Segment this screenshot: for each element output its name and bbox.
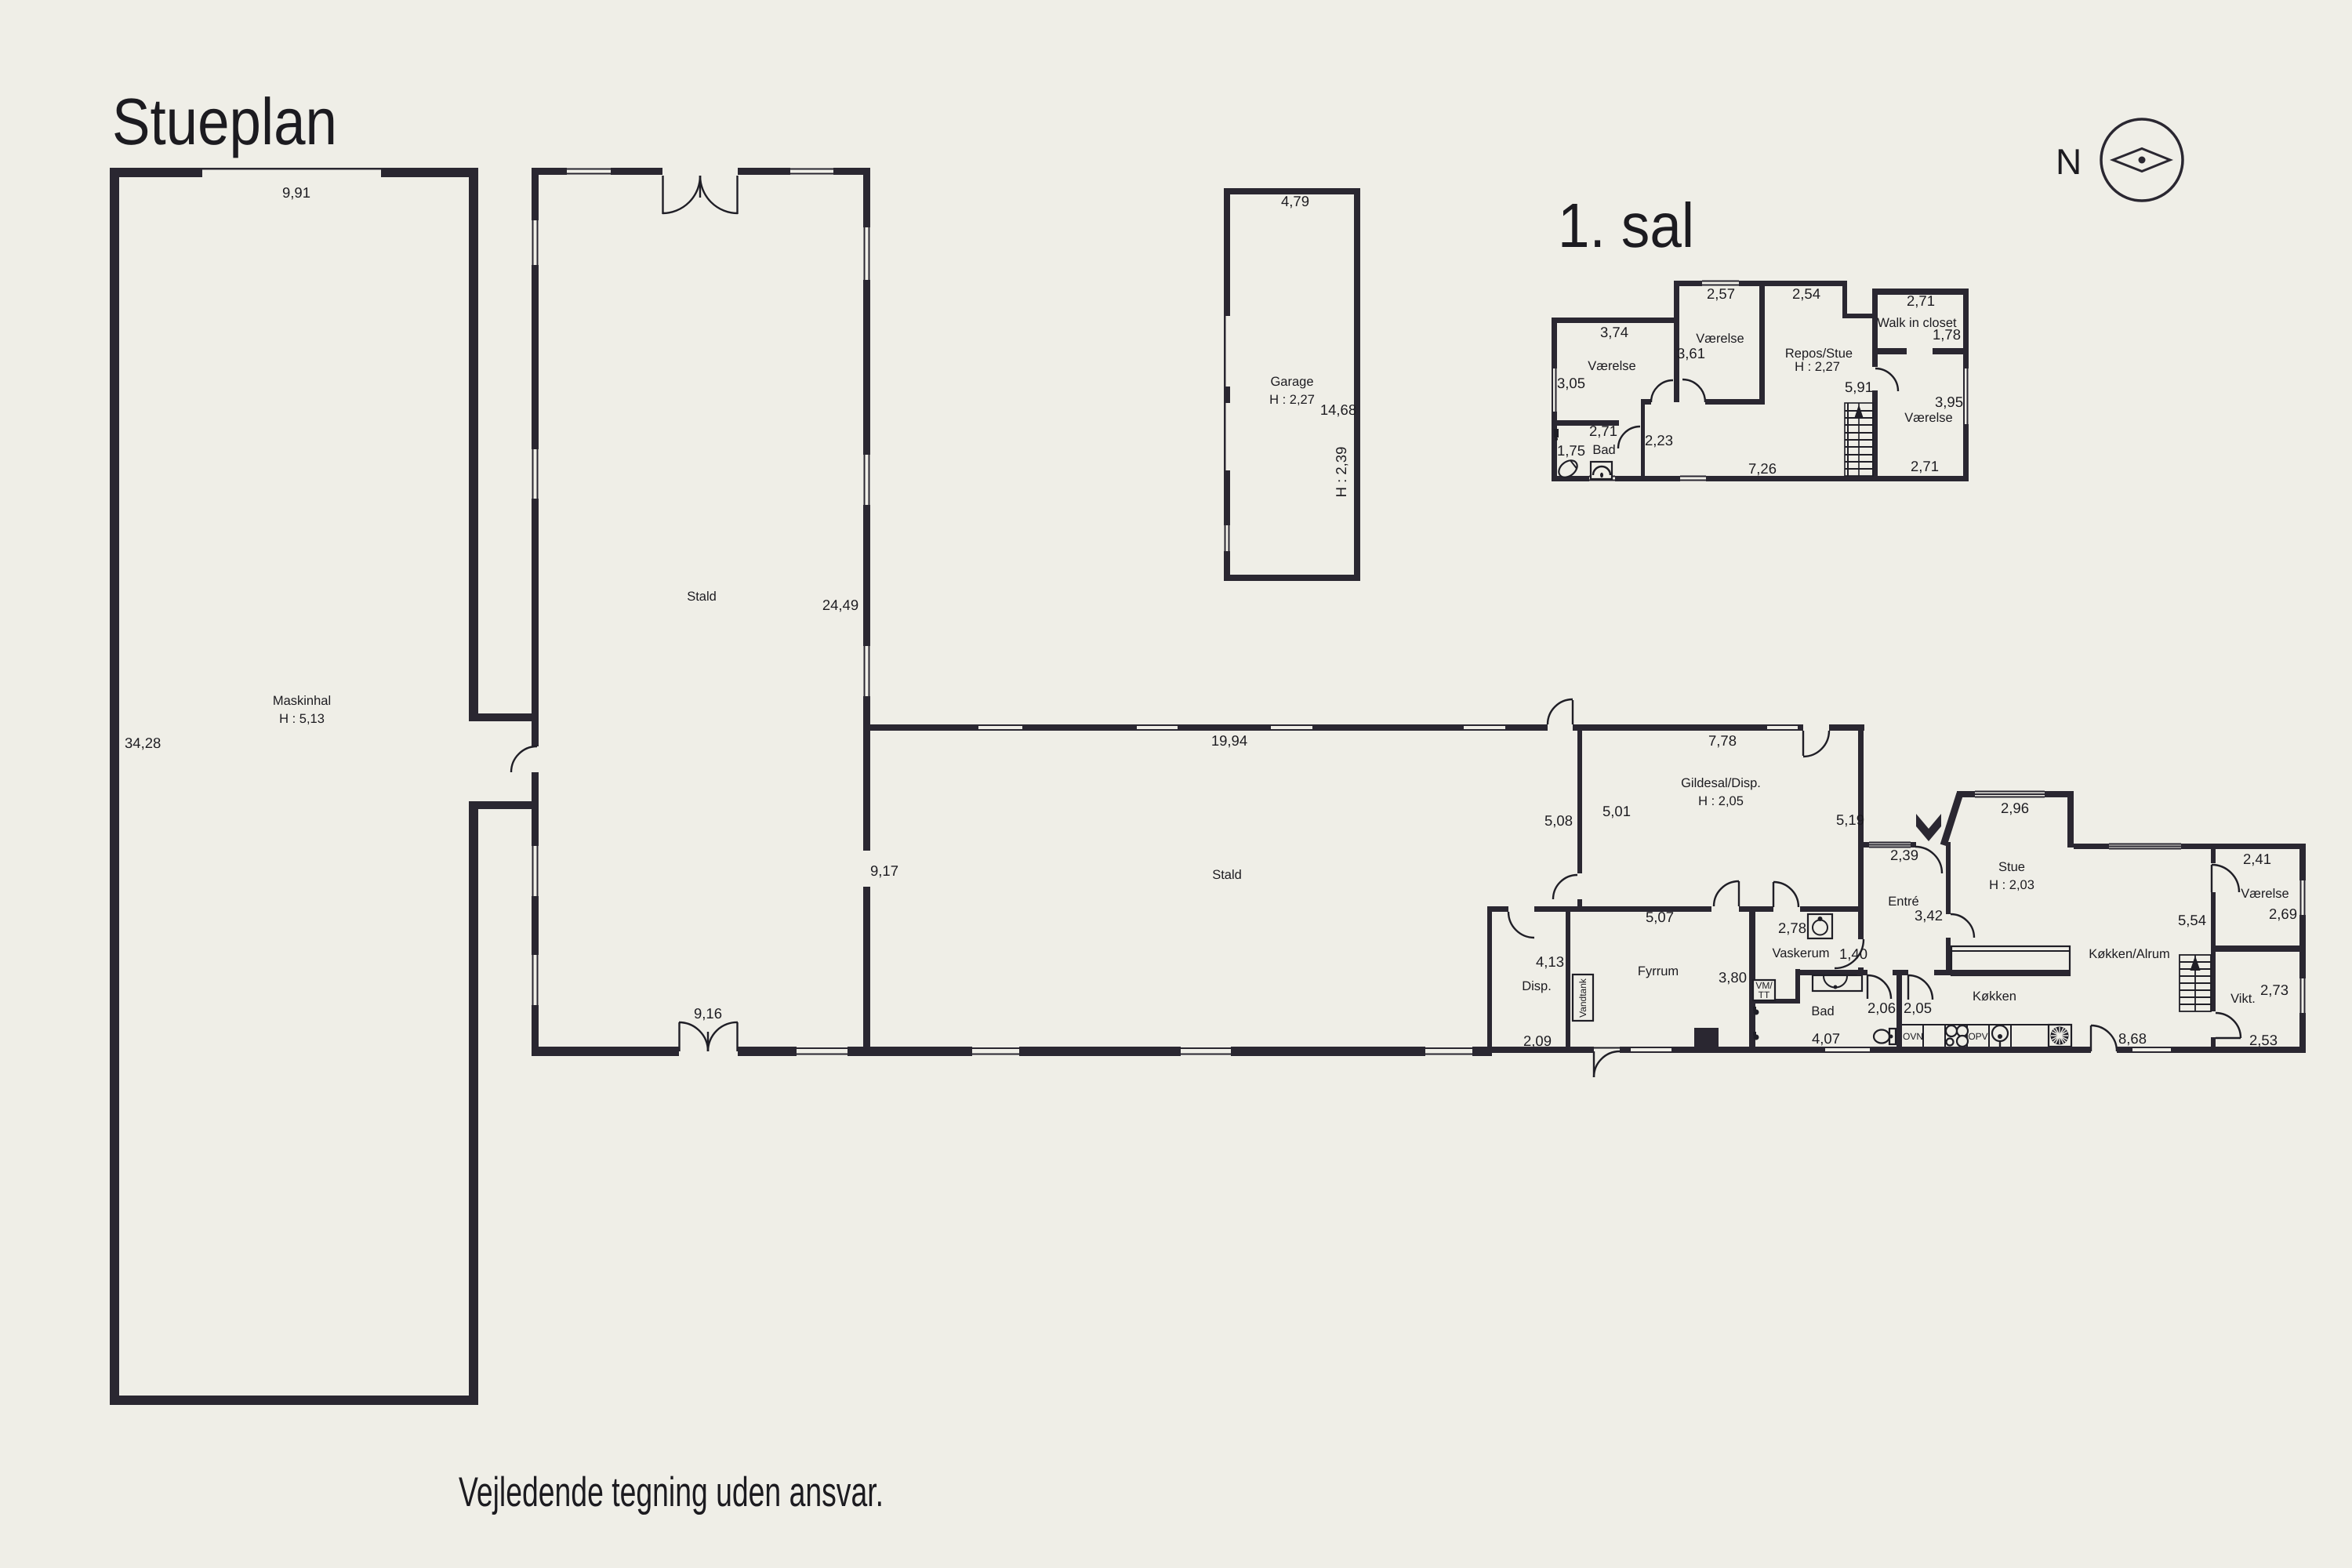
svg-text:2,78: 2,78: [1778, 920, 1806, 936]
svg-text:24,49: 24,49: [822, 597, 858, 613]
svg-text:Gildesal/Disp.: Gildesal/Disp.: [1681, 776, 1761, 790]
svg-text:4,79: 4,79: [1281, 193, 1309, 209]
svg-text:Vaskerum: Vaskerum: [1772, 946, 1829, 960]
svg-text:Garage: Garage: [1270, 375, 1313, 389]
svg-text:34,28: 34,28: [125, 735, 161, 751]
svg-text:1. sal: 1. sal: [1558, 191, 1694, 260]
svg-text:H : 2,39: H : 2,39: [1333, 447, 1349, 498]
svg-text:2,39: 2,39: [1890, 847, 1918, 863]
svg-text:2,69: 2,69: [2269, 906, 2297, 922]
svg-text:2,54: 2,54: [1792, 285, 1820, 302]
svg-text:5,07: 5,07: [1646, 909, 1674, 925]
svg-text:2,09: 2,09: [1523, 1033, 1552, 1049]
svg-text:7,26: 7,26: [1748, 460, 1777, 477]
svg-text:Repos/Stue: Repos/Stue: [1785, 347, 1853, 361]
svg-text:H : 2,27: H : 2,27: [1795, 360, 1840, 374]
svg-text:2,06: 2,06: [1867, 1000, 1896, 1016]
svg-text:Vandtank: Vandtank: [1577, 978, 1588, 1018]
svg-text:Stue: Stue: [1998, 860, 2025, 874]
svg-text:9,17: 9,17: [870, 862, 898, 879]
svg-text:Stald: Stald: [1212, 868, 1242, 882]
svg-text:2,71: 2,71: [1589, 423, 1617, 439]
svg-text:Værelse: Værelse: [1588, 359, 1635, 373]
svg-text:2,41: 2,41: [2243, 851, 2271, 867]
svg-text:Disp.: Disp.: [1522, 979, 1552, 993]
svg-text:Køkken: Køkken: [1973, 989, 2016, 1004]
svg-text:2,53: 2,53: [2249, 1032, 2278, 1048]
svg-text:Bad: Bad: [1592, 443, 1615, 457]
svg-text:OPV: OPV: [1968, 1031, 1987, 1042]
svg-text:3,95: 3,95: [1935, 394, 1963, 410]
svg-text:19,94: 19,94: [1211, 732, 1247, 749]
svg-text:Vejledende tegning uden ansvar: Vejledende tegning uden ansvar.: [459, 1469, 884, 1515]
svg-text:5,19: 5,19: [1836, 811, 1864, 828]
svg-text:9,16: 9,16: [694, 1005, 722, 1022]
svg-text:5,01: 5,01: [1602, 803, 1631, 819]
svg-text:3,05: 3,05: [1557, 375, 1585, 391]
svg-text:H : 5,13: H : 5,13: [279, 712, 325, 726]
svg-text:7,78: 7,78: [1708, 732, 1737, 749]
svg-text:14,68: 14,68: [1320, 401, 1356, 418]
svg-text:2,73: 2,73: [2260, 982, 2288, 998]
svg-text:TT: TT: [1759, 989, 1770, 1000]
svg-text:Stald: Stald: [687, 590, 717, 604]
svg-text:H : 2,27: H : 2,27: [1269, 393, 1315, 407]
svg-text:4,07: 4,07: [1812, 1030, 1840, 1047]
svg-text:H : 2,03: H : 2,03: [1989, 878, 2034, 892]
svg-text:1,78: 1,78: [1933, 326, 1961, 343]
svg-text:H : 2,05: H : 2,05: [1698, 794, 1744, 808]
svg-text:OVN: OVN: [1903, 1031, 1923, 1042]
svg-text:4,13: 4,13: [1536, 953, 1564, 970]
svg-text:Maskinhal: Maskinhal: [273, 694, 331, 708]
svg-text:Køkken/Alrum: Køkken/Alrum: [2089, 947, 2170, 961]
svg-text:2,71: 2,71: [1911, 458, 1939, 474]
svg-text:3,61: 3,61: [1677, 345, 1705, 361]
svg-text:2,23: 2,23: [1645, 432, 1673, 448]
svg-text:5,08: 5,08: [1544, 812, 1573, 829]
svg-text:Vikt.: Vikt.: [2230, 992, 2256, 1006]
svg-text:3,80: 3,80: [1719, 969, 1747, 985]
svg-text:5,54: 5,54: [2178, 912, 2206, 928]
svg-text:Værelse: Værelse: [1696, 332, 1744, 346]
svg-text:Fyrrum: Fyrrum: [1638, 964, 1679, 978]
svg-text:2,05: 2,05: [1904, 1000, 1932, 1016]
svg-text:9,91: 9,91: [282, 184, 310, 201]
svg-text:Bad: Bad: [1811, 1004, 1834, 1018]
svg-text:8,68: 8,68: [2118, 1030, 2147, 1047]
svg-text:2,71: 2,71: [1907, 292, 1935, 309]
svg-text:Værelse: Værelse: [2241, 887, 2288, 901]
svg-text:3,74: 3,74: [1600, 324, 1628, 340]
svg-text:Værelse: Værelse: [1904, 411, 1952, 425]
svg-text:1,40: 1,40: [1839, 946, 1867, 962]
svg-text:3,42: 3,42: [1915, 907, 1943, 924]
svg-text:2,96: 2,96: [2001, 800, 2029, 816]
svg-text:N: N: [2056, 141, 2082, 182]
svg-text:Stueplan: Stueplan: [112, 85, 337, 158]
svg-text:5,91: 5,91: [1845, 379, 1873, 395]
svg-text:1,75: 1,75: [1557, 442, 1585, 459]
svg-text:2,57: 2,57: [1707, 285, 1735, 302]
